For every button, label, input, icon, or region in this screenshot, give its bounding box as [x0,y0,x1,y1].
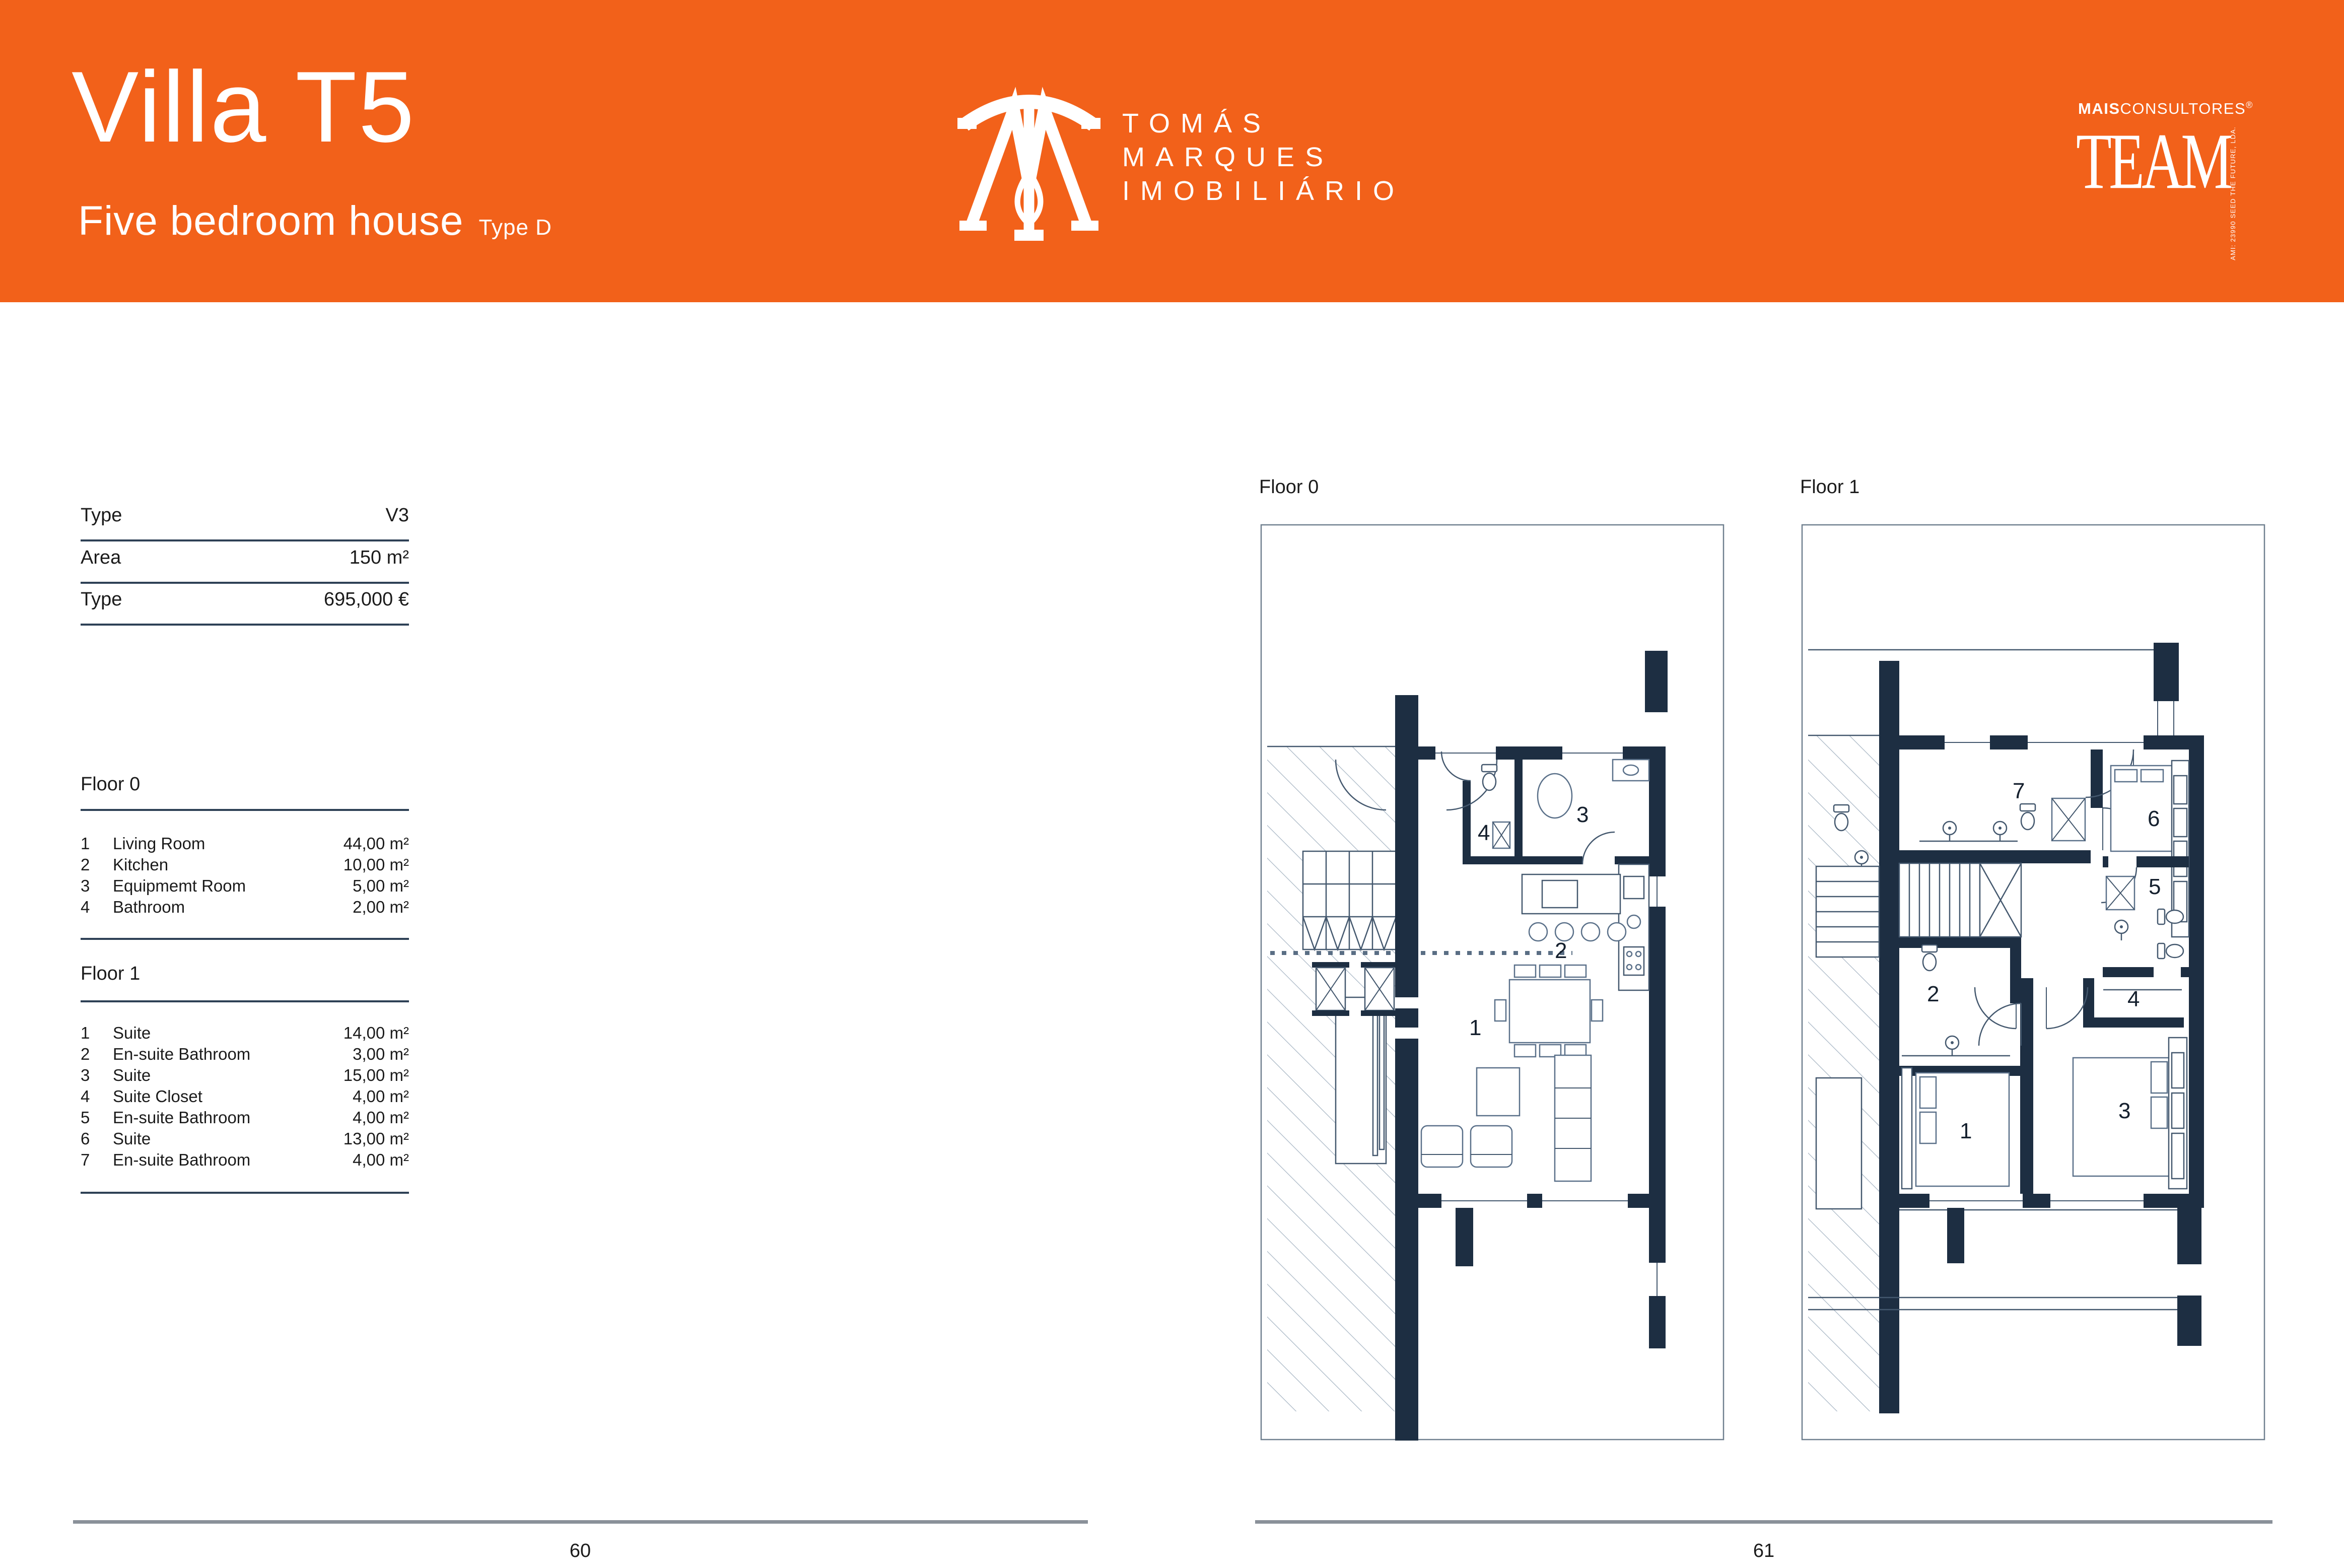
page-subtitle: Five bedroom house Type D [78,197,552,245]
floor1-plan: 1 2 3 4 5 6 7 [1801,524,2265,1441]
room-number: 7 [81,1150,113,1170]
mais-bold: MAIS [2078,100,2120,117]
room-area: 4,00 m² [353,1108,409,1127]
table-row: 6 Suite 13,00 m² [81,1129,409,1148]
room-number-label: 7 [2013,779,2025,803]
room-area: 5,00 m² [353,876,409,896]
footer-rule-right [1255,1520,2272,1524]
divider [81,809,409,811]
room-number: 1 [81,1024,113,1043]
room-area: 10,00 m² [343,855,409,874]
room-name: Suite [113,1066,343,1085]
room-number: 4 [81,898,113,917]
registered-mark: ® [2246,100,2253,110]
room-number-label: 6 [2148,806,2160,831]
table-row: 2 Kitchen 10,00 m² [81,855,409,874]
room-area: 3,00 m² [353,1045,409,1064]
room-name: Suite Closet [113,1087,353,1106]
room-number-label: 1 [1469,1015,1481,1040]
room-number: 5 [81,1108,113,1127]
divider [81,938,409,940]
room-number: 3 [81,876,113,896]
footer-rule-left [73,1520,1088,1524]
spec-value: V3 [386,505,409,526]
room-number-label: 1 [1960,1119,1972,1143]
page-number-left: 60 [560,1540,600,1562]
table-row: 3 Equipmemt Room 5,00 m² [81,876,409,896]
room-name: En-suite Bathroom [113,1150,353,1170]
subtitle-type: Type D [479,215,552,240]
room-number-label: 2 [1927,982,1939,1006]
table-row: 1 Suite 14,00 m² [81,1024,409,1043]
room-number: 2 [81,1045,113,1064]
room-name: Living Room [113,834,343,853]
room-area: 2,00 m² [353,898,409,917]
room-name: Bathroom [113,898,353,917]
spec-label: Type [81,505,122,526]
maisconsultores-team-logo: MAISCONSULTORES® TEAM AMI: 23990 SEED TH… [2078,100,2269,281]
brand-wordmark: TOMÁS MARQUES IMOBILIÁRIO [1122,107,1405,208]
table-row: 2 En-suite Bathroom 3,00 m² [81,1045,409,1064]
table-row: 4 Bathroom 2,00 m² [81,898,409,917]
room-name: Equipmemt Room [113,876,353,896]
room-number: 3 [81,1066,113,1085]
tomas-marques-monogram-icon [953,71,1105,244]
room-number-label: 3 [1576,802,1589,827]
room-name: Suite [113,1129,343,1148]
room-name: Kitchen [113,855,343,874]
table-row: 7 En-suite Bathroom 4,00 m² [81,1150,409,1170]
page-title: Villa T5 [72,54,416,160]
room-number-label: 4 [2127,987,2140,1011]
table-row: 3 Suite 15,00 m² [81,1066,409,1085]
room-area: 4,00 m² [353,1150,409,1170]
room-number: 6 [81,1129,113,1148]
spec-row-area: Area 150 m² [81,547,409,584]
room-number: 4 [81,1087,113,1106]
room-area: 4,00 m² [353,1087,409,1106]
page-number-right: 61 [1744,1540,1784,1562]
room-name: En-suite Bathroom [113,1108,353,1127]
spec-label: Area [81,547,121,569]
room-name: En-suite Bathroom [113,1045,353,1064]
room-name: Suite [113,1024,343,1043]
consultores-text: CONSULTORES [2120,100,2246,117]
spec-label: Type [81,589,122,610]
room-number: 2 [81,855,113,874]
room-number-label: 3 [2118,1099,2130,1123]
maisconsultores-wordmark: MAISCONSULTORES® [2078,100,2269,118]
floor0-list-title: Floor 0 [81,774,140,795]
brand-line2: MARQUES [1122,141,1405,174]
floor1-list-title: Floor 1 [81,963,140,985]
brand-line1: TOMÁS [1122,107,1405,141]
room-area: 44,00 m² [343,834,409,853]
floor0-plan-label: Floor 0 [1259,476,1319,498]
divider [81,1000,409,1002]
room-area: 15,00 m² [343,1066,409,1085]
table-row: 1 Living Room 44,00 m² [81,834,409,853]
spec-value: 150 m² [350,547,409,569]
ami-vertical-text: AMI: 23990 SEED THE FUTURE, LDA. [2229,126,2239,292]
subtitle-text: Five bedroom house [78,197,464,245]
room-number-label: 5 [2149,874,2161,899]
brand-line3: IMOBILIÁRIO [1122,174,1405,208]
room-area: 13,00 m² [343,1129,409,1148]
floor1-plan-label: Floor 1 [1800,476,1859,498]
spec-row-price: Type 695,000 € [81,589,409,626]
table-row: 4 Suite Closet 4,00 m² [81,1087,409,1106]
room-area: 14,00 m² [343,1024,409,1043]
header-band: Villa T5 Five bedroom house Type D TOMÁS… [0,0,2344,302]
floor0-plan: 1 2 3 4 [1260,524,1725,1441]
spec-row-type: Type V3 [81,505,409,541]
spec-value: 695,000 € [324,589,409,610]
room-number-label: 4 [1478,821,1490,845]
room-number-label: 2 [1555,938,1567,963]
table-row: 5 En-suite Bathroom 4,00 m² [81,1108,409,1127]
divider [81,1192,409,1194]
team-wordmark: TEAM [2076,122,2230,202]
room-number: 1 [81,834,113,853]
